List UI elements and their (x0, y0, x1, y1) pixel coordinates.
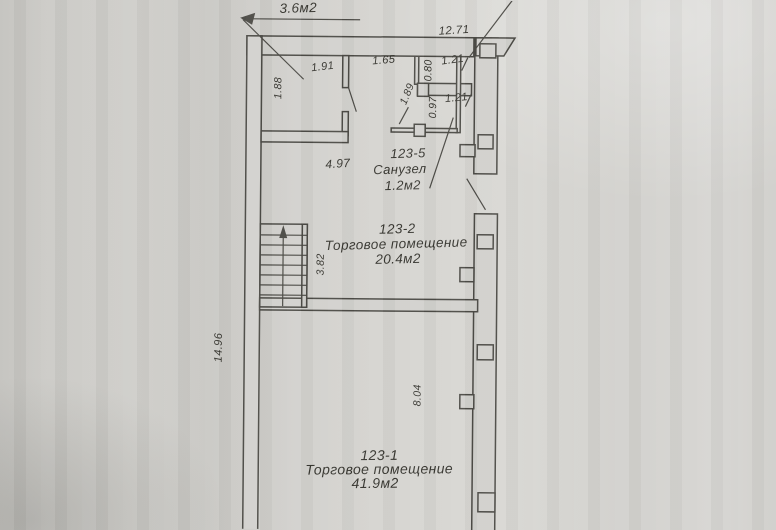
dim-room1-height: 8.04 (413, 384, 424, 406)
dim-left-height: 14.96 (214, 333, 225, 363)
stair-arrowhead (279, 225, 287, 238)
column-marker (477, 345, 493, 360)
partition-room-bottom (261, 131, 348, 143)
dim-wall-165: 1.65 (372, 55, 396, 68)
room-name-123-5: Санузел (373, 162, 427, 176)
room-area-123-1: 41.9м2 (352, 476, 399, 490)
dim-bath-height: 0.97 (428, 96, 439, 118)
area-note: 3.6м2 (279, 1, 317, 15)
shaft-left-wall (415, 56, 419, 84)
room-door-swing (348, 88, 356, 112)
wall-right-lower (472, 214, 498, 530)
room-area-123-2: 20.4м2 (375, 252, 421, 267)
dim-corridor-width: 4.97 (325, 157, 351, 171)
stair-direction-line (283, 233, 284, 306)
bath-bottom-cap (414, 124, 425, 136)
column-marker (480, 44, 496, 58)
column-marker (477, 235, 493, 249)
column-marker (478, 493, 495, 512)
dim-bath-width: 1.21 (444, 92, 468, 105)
leader-dim-189 (399, 107, 408, 124)
partition-room-right-upper (343, 56, 349, 88)
bath-top-wall-cap (417, 83, 428, 96)
dim-room2-height: 3.82 (316, 253, 327, 275)
leader-arrowhead (240, 13, 255, 25)
scanned-floorplan-page: 3.6м2 12.71 1.91 1.65 1.21 0.80 1.88 1.8… (0, 0, 776, 530)
dim-niche-height: 0.80 (423, 59, 434, 81)
column-marker (460, 145, 475, 157)
wall-top (247, 36, 474, 57)
room-area-123-5: 1.2м2 (384, 178, 421, 192)
wall-divider (260, 298, 478, 312)
room-id-123-2: 123-2 (379, 222, 416, 236)
column-marker (460, 268, 474, 282)
column-marker (460, 395, 474, 409)
dim-top-width: 12.71 (438, 25, 469, 38)
column-marker (478, 135, 493, 149)
floorplan: 3.6м2 12.71 1.91 1.65 1.21 0.80 1.88 1.8… (0, 0, 776, 530)
entry-door-swing (466, 179, 485, 210)
leader-area-underline (242, 19, 360, 20)
dim-room-top-height: 1.88 (273, 77, 284, 99)
room-id-123-5: 123-5 (390, 146, 426, 160)
